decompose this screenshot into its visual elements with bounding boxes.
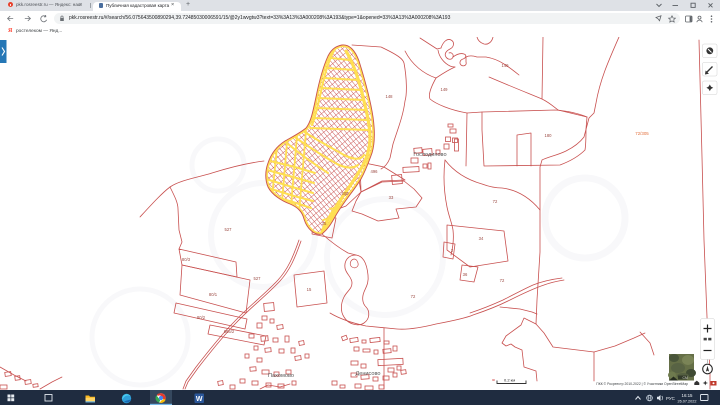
svg-text:CM: CM [683, 376, 688, 380]
svg-text:90: 90 [492, 378, 496, 382]
svg-text:72/305: 72/305 [635, 131, 649, 136]
svg-text:Пахомово: Пахомово [268, 373, 294, 379]
svg-text:15: 15 [307, 287, 312, 292]
svg-text:148: 148 [386, 94, 394, 99]
svg-text:72: 72 [493, 199, 498, 204]
svg-text:33: 33 [389, 195, 394, 200]
svg-text:527: 527 [254, 276, 262, 281]
svg-text:РУС: РУС [666, 396, 675, 401]
svg-text:26.07.2022: 26.07.2022 [677, 399, 696, 403]
svg-text:Господиново: Господиново [413, 152, 446, 158]
svg-text:80/2: 80/2 [197, 315, 206, 320]
svg-text:496: 496 [371, 169, 379, 174]
svg-text:72: 72 [500, 278, 505, 283]
svg-text:35: 35 [322, 221, 327, 226]
svg-text:0.2 км: 0.2 км [504, 378, 515, 383]
svg-text:527: 527 [225, 227, 233, 232]
svg-text:W: W [196, 396, 203, 403]
svg-text:Денисово: Денисово [355, 371, 380, 377]
svg-text:500: 500 [342, 191, 350, 196]
svg-text:80/3: 80/3 [182, 257, 191, 262]
svg-text:180: 180 [545, 133, 553, 138]
svg-text:16:15: 16:15 [682, 392, 694, 397]
svg-text:34: 34 [479, 236, 484, 241]
svg-text:665/2: 665/2 [224, 329, 235, 334]
svg-text:80/1: 80/1 [209, 292, 218, 297]
svg-text:149: 149 [441, 87, 449, 92]
svg-text:149: 149 [502, 63, 510, 68]
svg-text:ПКК © Росреестр 2010-2022 | ©: ПКК © Росреестр 2010-2022 | © Участники … [596, 382, 688, 386]
svg-text:36: 36 [463, 272, 468, 277]
svg-text:72: 72 [411, 294, 416, 299]
